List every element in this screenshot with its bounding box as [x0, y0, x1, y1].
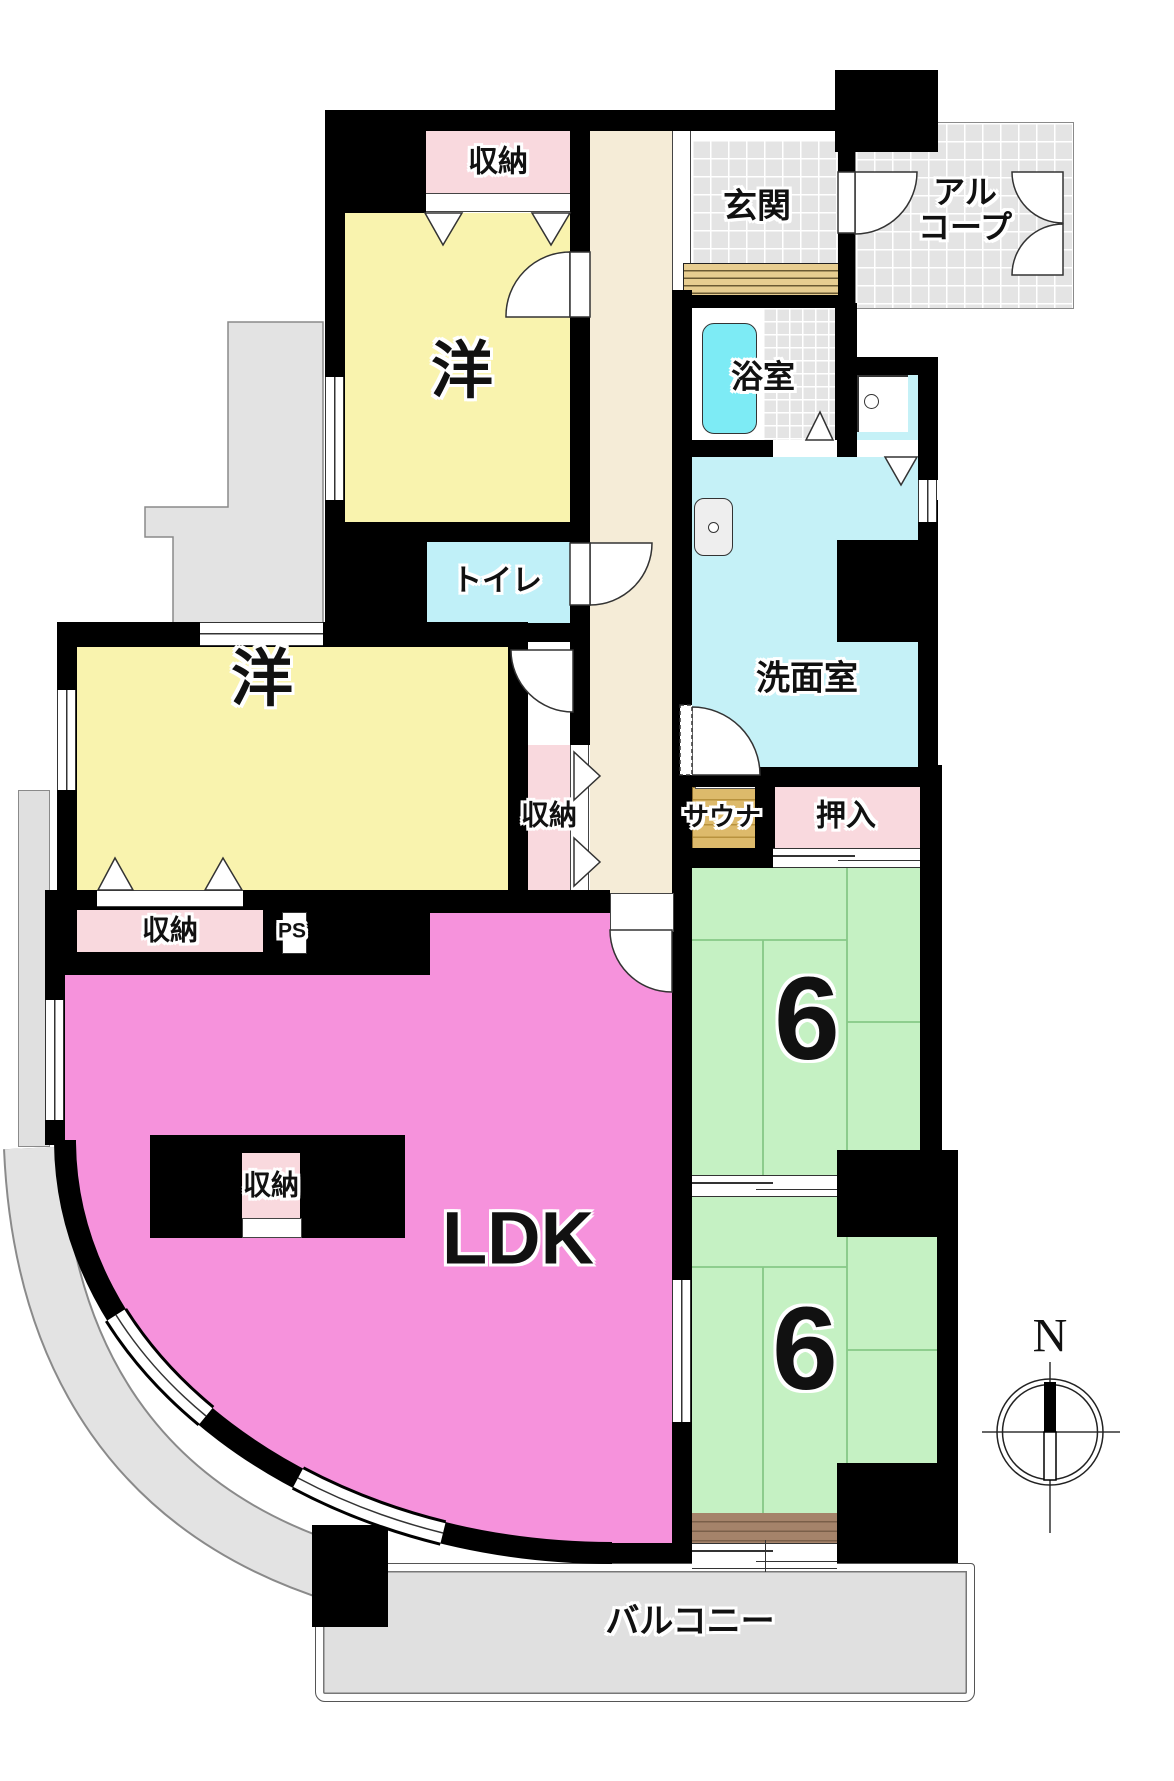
door-swing-ldk	[610, 930, 672, 992]
door-swing-alcove-upper	[1012, 172, 1063, 223]
curve-window	[116, 1315, 206, 1416]
oshiire-label: 押入	[816, 800, 876, 833]
compass-n-label: N	[1033, 1311, 1068, 1364]
door-swing-western-north	[506, 252, 570, 317]
door-swing-washroom	[692, 707, 760, 775]
symbols-layer	[0, 0, 1174, 1781]
folding-door-triangle	[574, 752, 600, 800]
bathroom-label: 浴室	[731, 359, 795, 394]
door-leaf	[570, 543, 590, 605]
alcove-label-line1: アル	[933, 174, 997, 210]
tatami-north-label: 6	[774, 955, 840, 1085]
closet-mark-triangle	[205, 858, 242, 890]
door-leaf	[838, 172, 855, 233]
door-swing-western-center	[511, 650, 573, 712]
curve-window	[298, 1478, 443, 1533]
door-leaf-dashed	[680, 705, 692, 775]
door-swing-alcove-lower	[1012, 224, 1063, 275]
door-swing-toilet	[590, 543, 652, 605]
pipe-space-label: PS	[278, 919, 306, 942]
balcony-label: バルコニー	[605, 1603, 774, 1640]
compass-icon	[982, 1362, 1120, 1533]
storage-top-label: 収納	[468, 146, 528, 179]
storage-west-wall-label: 収納	[521, 801, 577, 832]
door-leaf	[570, 252, 590, 317]
door-swing-entrance	[855, 172, 917, 234]
tatami-south-label: 6	[772, 1285, 838, 1415]
closet-mark-triangle	[98, 858, 133, 890]
window-triangle-washroom	[885, 457, 917, 485]
washroom-label: 洗面室	[756, 660, 858, 697]
western-north-label: 洋	[431, 338, 493, 406]
alcove-label: アル コープ	[918, 175, 1012, 245]
closet-mark-triangle	[532, 213, 570, 245]
toilet-label: トイレ	[452, 565, 542, 598]
western-center-label: 洋	[231, 646, 293, 714]
alcove-label-line2: コープ	[918, 209, 1012, 245]
storage-south-label: 収納	[142, 916, 198, 947]
folding-door-triangle	[574, 838, 600, 886]
ldk-label: LDK	[442, 1197, 594, 1278]
closet-mark-triangle	[425, 213, 462, 245]
sauna-label: サウナ	[683, 803, 761, 832]
storage-ldk-label: 収納	[243, 1171, 299, 1202]
floor-plan: 収納 洋 玄関 アル コープ 浴室 トイレ 洗面室 サウナ 押入 収納 洋 収納…	[0, 0, 1174, 1781]
entrance-label: 玄関	[723, 188, 791, 225]
door-triangle-bathroom	[806, 412, 833, 440]
